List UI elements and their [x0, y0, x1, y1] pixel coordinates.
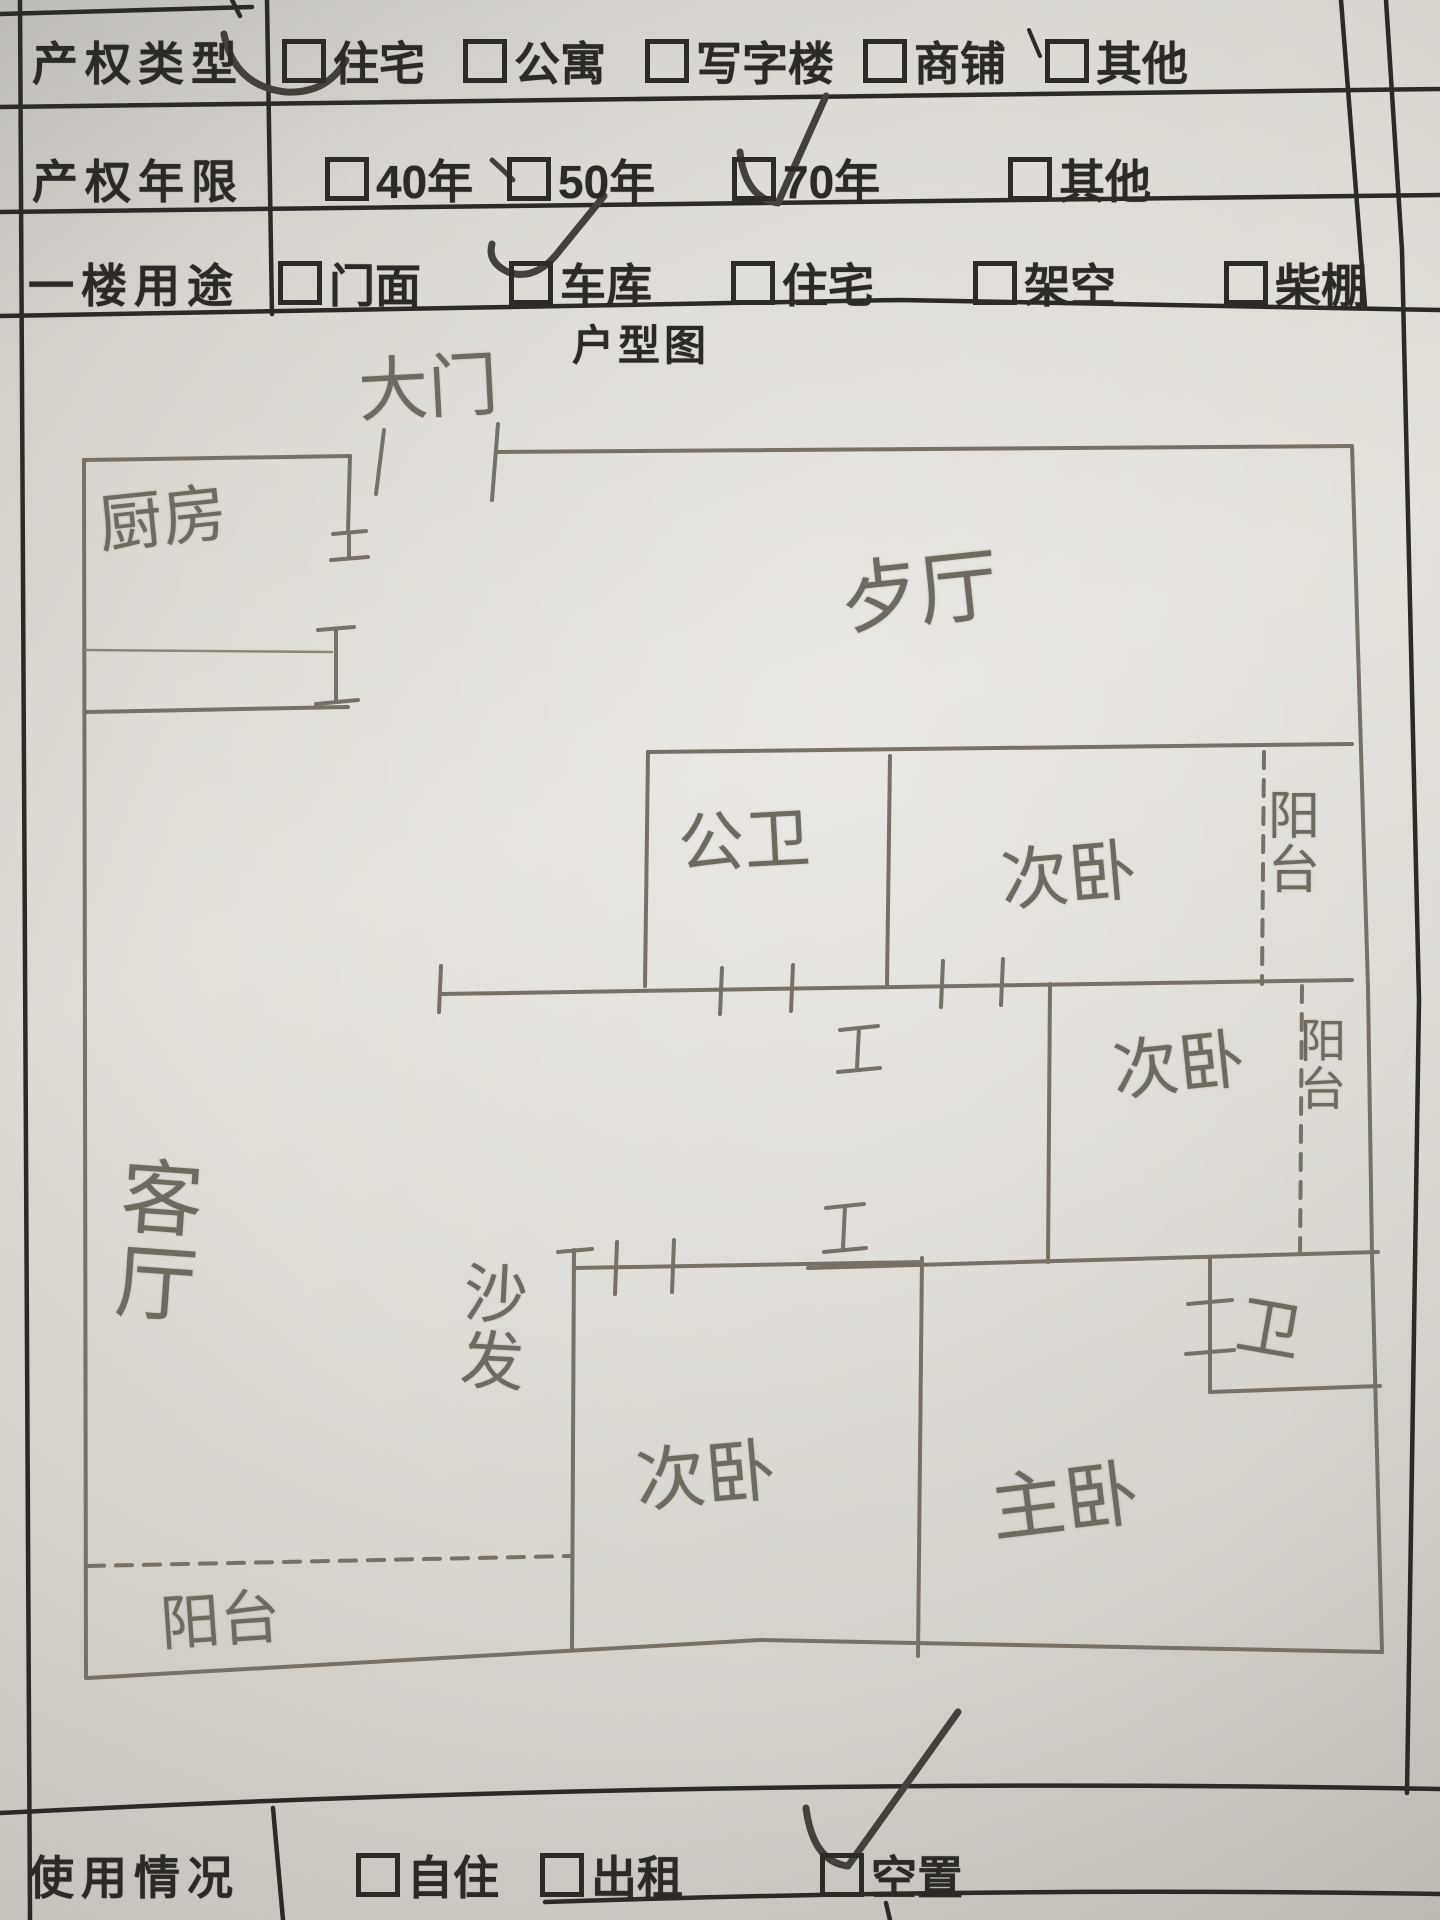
option-property-office: 写字楼 — [645, 28, 834, 94]
wall-left-outer — [84, 460, 86, 1678]
option-usage-self: 自住 — [356, 1842, 499, 1908]
door-mark-kitchen-2 — [316, 627, 358, 704]
row-label-first-floor-use: 一楼用途 — [28, 250, 240, 316]
checkbox-usage-rented[interactable] — [540, 1853, 584, 1897]
option-label: 车库 — [560, 250, 652, 316]
option-tenure-70: 70年 — [732, 146, 880, 212]
door-tick-right — [492, 424, 498, 500]
option-label: 写字楼 — [696, 28, 834, 94]
option-label: 公寓 — [514, 28, 606, 94]
checkbox-property-shop[interactable] — [863, 39, 907, 83]
option-label: 住宅 — [782, 250, 874, 316]
door-marks-bathroom — [1186, 1300, 1234, 1354]
checkbox-use-storefront[interactable] — [278, 261, 322, 305]
option-property-shop: 商铺 — [863, 28, 1006, 94]
wall-bathroom-bottom — [1210, 1386, 1380, 1392]
checkbox-use-garage[interactable] — [509, 261, 553, 305]
door-tick-left — [376, 430, 384, 494]
option-use-stilt: 架空 — [973, 250, 1116, 316]
option-label: 其他 — [1059, 146, 1151, 212]
wall-publicbath-left — [645, 752, 648, 986]
floor-plan-title: 户型图 — [572, 312, 710, 373]
room-label-balcony-top: 阳台 — [1268, 790, 1324, 898]
option-label: 柴棚 — [1275, 250, 1367, 316]
option-tenure-other: 其他 — [1008, 146, 1151, 212]
wall-kitchen-right — [348, 456, 350, 532]
room-label-dining: 歺厅 — [832, 520, 1003, 652]
checkbox-tenure-other[interactable] — [1008, 157, 1052, 201]
checkbox-usage-self[interactable] — [356, 1853, 400, 1897]
room-label-balcony-middle: 阳台 — [1300, 1018, 1350, 1114]
wall-band-bottom — [440, 980, 1352, 994]
option-label: 住宅 — [333, 28, 425, 94]
balcony-bottom-dashed — [88, 1556, 572, 1566]
wall-midroom-left — [1048, 984, 1050, 1262]
option-label: 架空 — [1024, 250, 1116, 316]
option-label: 40年 — [376, 146, 473, 212]
door-mark-kitchen-1 — [331, 531, 368, 560]
wall-master-left — [918, 1258, 922, 1656]
grid-label-divider-bottom — [273, 1808, 283, 1920]
room-label-bedroom-middle: 次卧 — [1107, 1005, 1248, 1114]
checkbox-use-woodshed[interactable] — [1224, 261, 1268, 305]
checkbox-use-stilt[interactable] — [973, 261, 1017, 305]
option-label: 50年 — [558, 146, 655, 212]
grid-top-edge — [0, 7, 252, 14]
grid-label-divider-top — [267, 0, 272, 314]
form-photo: 产权类型 住宅 公寓 写字楼 商铺 其他 产权年限 40年 50年 70年 其他… — [0, 0, 1440, 1920]
room-label-living-room: 客厅 — [112, 1155, 212, 1331]
kitchen-counter-line — [86, 650, 332, 652]
checkbox-tenure-50[interactable] — [507, 157, 551, 201]
option-label: 自住 — [407, 1842, 499, 1908]
checkbox-usage-vacant[interactable] — [820, 1853, 864, 1897]
checkbox-use-residential[interactable] — [731, 261, 775, 305]
room-label-balcony-bottom: 阳台 — [157, 1568, 283, 1663]
row-label-usage: 使用情况 — [28, 1842, 240, 1908]
wall-publicbath-right — [887, 756, 890, 986]
wall-top-kitchen — [84, 456, 350, 460]
option-use-residential: 住宅 — [731, 250, 874, 316]
room-label-bedroom-top: 次卧 — [996, 814, 1140, 924]
wall-bath-band-top — [648, 744, 1352, 752]
furniture-label-sofa: 沙发 — [459, 1260, 535, 1397]
option-tenure-40: 40年 — [325, 146, 473, 212]
room-label-bedroom-bottom: 次卧 — [631, 1414, 779, 1527]
option-label: 商铺 — [914, 28, 1006, 94]
option-use-storefront: 门面 — [278, 250, 421, 316]
option-label: 空置 — [871, 1842, 963, 1908]
wall-kitchen-bottom — [86, 707, 348, 712]
wall-lower-room-top — [574, 1262, 922, 1268]
balcony-top-dashed — [1262, 752, 1264, 984]
option-label: 门面 — [329, 250, 421, 316]
option-tenure-50: 50年 — [507, 146, 655, 212]
room-label-kitchen: 厨房 — [94, 462, 231, 567]
wall-lower-left-room — [558, 1249, 592, 1648]
room-label-bathroom: 卫 — [1230, 1273, 1309, 1375]
room-label-master-bedroom: 主卧 — [984, 1433, 1144, 1557]
checkbox-property-apartment[interactable] — [463, 39, 507, 83]
checkbox-tenure-70[interactable] — [732, 157, 776, 201]
row-label-tenure: 产权年限 — [32, 146, 244, 212]
option-property-residential: 住宅 — [282, 28, 425, 94]
wall-midroom-bottom — [808, 1252, 1378, 1268]
door-mark-corridor-1 — [838, 1026, 880, 1072]
checkbox-tenure-40[interactable] — [325, 157, 369, 201]
option-property-apartment: 公寓 — [463, 28, 606, 94]
checkbox-property-other[interactable] — [1045, 39, 1089, 83]
door-ticks-band — [439, 959, 1003, 1014]
option-label: 其他 — [1096, 28, 1188, 94]
wall-top-main — [497, 446, 1352, 452]
option-usage-vacant: 空置 — [820, 1842, 963, 1908]
grid-plan-bottom — [0, 1786, 1440, 1813]
room-label-public-bathroom: 公卫 — [676, 785, 813, 888]
option-usage-rented: 出租 — [540, 1842, 683, 1908]
door-ticks-lower-room — [615, 1240, 674, 1294]
option-label: 出租 — [591, 1842, 683, 1908]
option-use-garage: 车库 — [509, 250, 652, 316]
checkbox-property-residential[interactable] — [282, 39, 326, 83]
option-label: 70年 — [783, 146, 880, 212]
door-mark-corridor-2 — [824, 1204, 866, 1252]
room-label-entrance: 大门 — [355, 328, 500, 436]
option-property-other: 其他 — [1045, 28, 1188, 94]
option-use-woodshed: 柴棚 — [1224, 250, 1367, 316]
wall-right-outer — [1352, 446, 1382, 1652]
checkbox-property-office[interactable] — [645, 39, 689, 83]
row-label-property-type: 产权类型 — [32, 28, 244, 94]
apostrophe-mark — [1029, 30, 1040, 56]
grid-top-tick — [232, 0, 240, 16]
grid-right-border — [1386, 0, 1419, 1793]
